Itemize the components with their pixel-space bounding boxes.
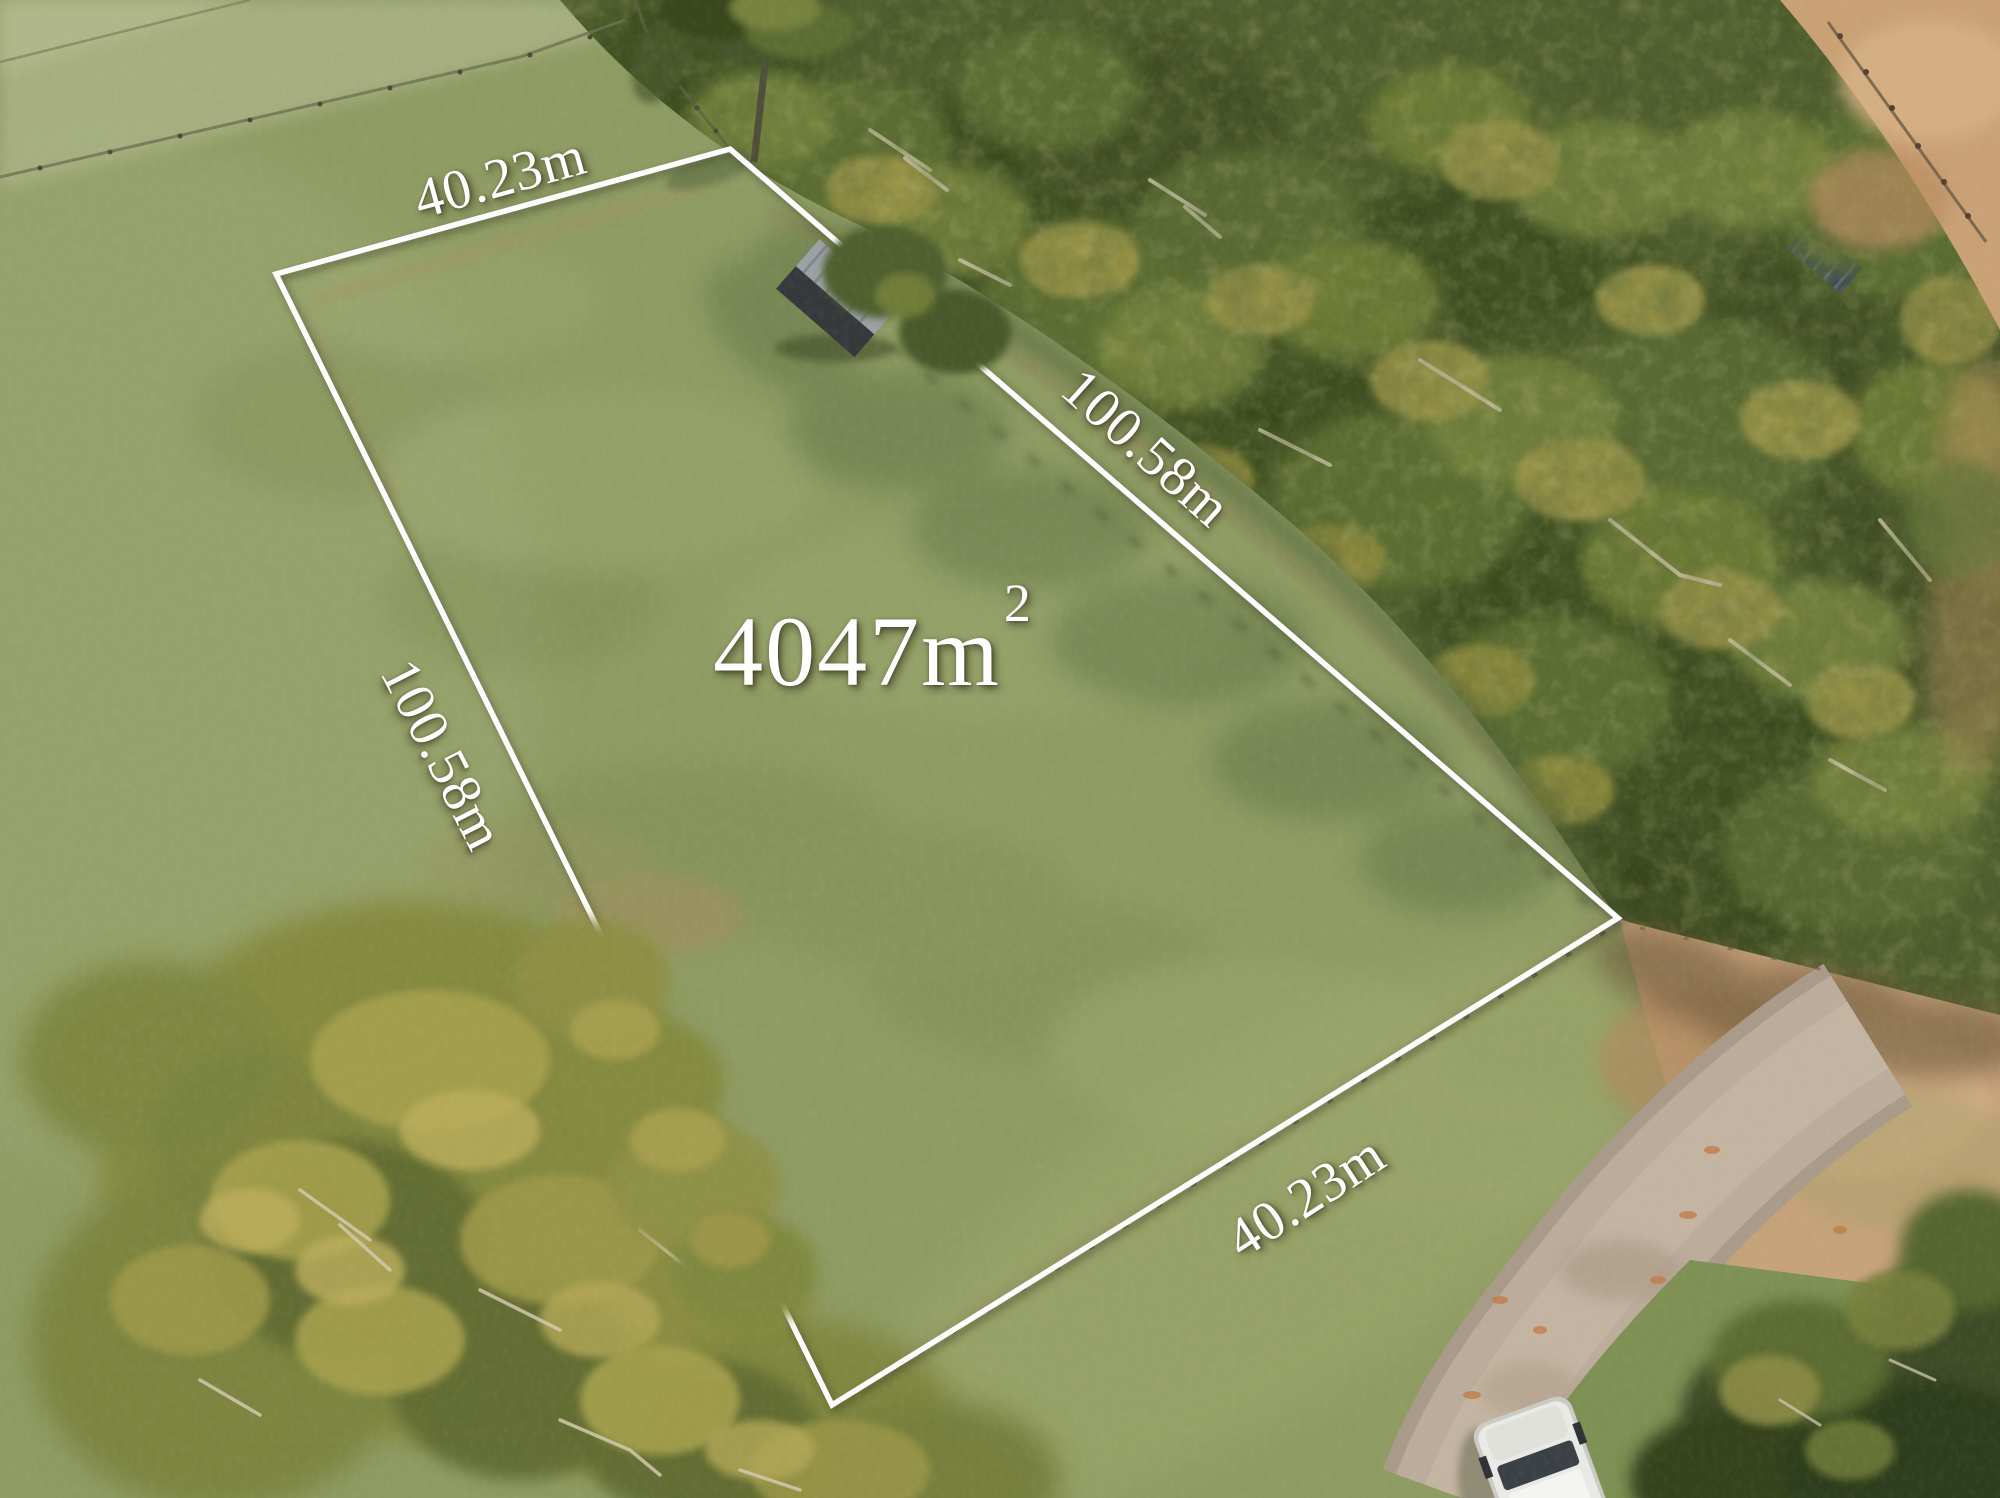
area-superscript: 2 (1004, 573, 1033, 633)
area-label: 4047m2 (713, 602, 1033, 702)
aerial-photo-scene (0, 0, 2000, 1498)
area-value: 4047m (713, 596, 1001, 707)
grain-overlay (0, 0, 2000, 1498)
aerial-photo: 40.23m 100.58m 100.58m 40.23m 4047m2 (0, 0, 2000, 1498)
